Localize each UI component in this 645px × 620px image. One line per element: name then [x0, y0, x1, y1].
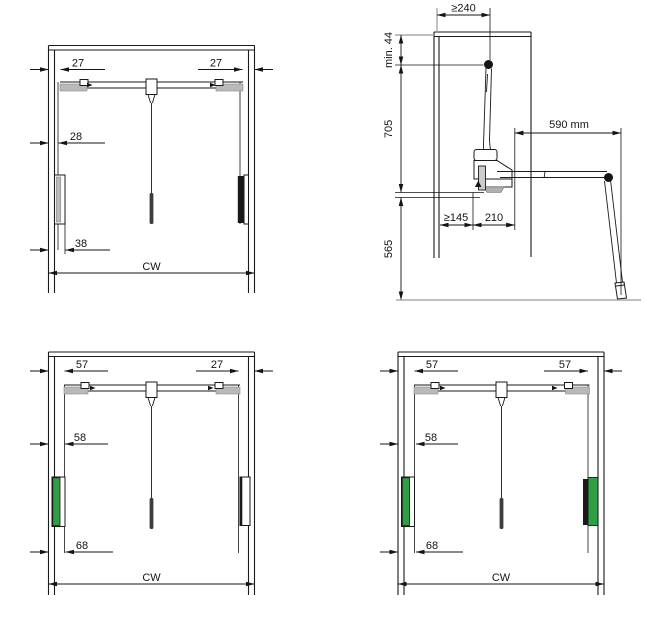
dim-label-57-left: 57	[426, 359, 438, 371]
slide-direction-arrow-left	[87, 83, 93, 87]
dim-label-27-right: 27	[210, 58, 222, 70]
dim-label-240: ≥240	[451, 3, 475, 15]
dim-label-68: 68	[426, 540, 438, 552]
dimension-145: ≥145	[440, 193, 473, 231]
dim-label-cw: CW	[142, 572, 161, 584]
lift-rail-assembly	[402, 382, 599, 553]
dimension-240: ≥240	[437, 3, 490, 61]
pull-handle	[496, 382, 507, 529]
technical-drawing-sheet: 27 27 28 38 CW	[0, 0, 645, 620]
dimension-57-left: 57	[30, 359, 108, 371]
dim-label-68: 68	[76, 540, 88, 552]
dimension-57-left: 57	[380, 359, 458, 371]
pull-handle	[146, 382, 157, 529]
dim-label-57-right: 57	[559, 359, 571, 371]
slide-direction-arrow-left	[90, 386, 96, 390]
wall-bracket-right-green	[583, 478, 598, 526]
dim-label-58: 58	[74, 432, 86, 444]
lift-rail-assembly	[55, 79, 249, 254]
dim-label-210: 210	[485, 212, 503, 224]
dimension-27-right: 27	[196, 359, 273, 371]
slide-direction-arrow-right	[552, 386, 558, 390]
front-view-lower-left: 57 27 58 68 CW	[18, 338, 308, 612]
dim-label-28: 28	[70, 131, 82, 143]
wall-bracket-left-green	[52, 477, 65, 527]
dim-label-590: 590 mm	[549, 119, 589, 131]
pivot-arm	[604, 173, 613, 182]
lift-arm-extended	[497, 172, 627, 300]
side-view: ≥240 min. 44 705 565 590 mm	[383, 0, 645, 314]
dimension-cabinet-width: CW	[49, 261, 255, 273]
cabinet-side-outline	[434, 32, 531, 258]
dimension-min44: min. 44	[383, 32, 484, 68]
dimension-58: 58	[30, 432, 108, 444]
dimension-cabinet-width: CW	[398, 572, 604, 584]
dimension-210: 210	[473, 212, 515, 225]
dim-label-145: ≥145	[444, 212, 468, 224]
dimension-58: 58	[380, 432, 458, 444]
dim-label-58: 58	[425, 432, 437, 444]
dim-label-min44: min. 44	[383, 32, 395, 68]
lift-mechanism-stored	[474, 60, 512, 193]
wall-bracket-right	[238, 175, 249, 224]
dimension-565: 565	[383, 198, 641, 301]
slide-direction-arrow-left	[440, 386, 446, 390]
dimension-38: 38	[30, 238, 110, 250]
front-view-lower-right: 57 57 58 68 CW	[368, 338, 645, 612]
lift-rail-assembly	[52, 382, 250, 553]
dimension-cabinet-width: CW	[49, 572, 255, 584]
dim-label-cw: CW	[142, 261, 161, 273]
pivot-top	[484, 60, 493, 69]
dimension-28: 28	[30, 131, 105, 143]
wall-bracket-left-green	[402, 477, 415, 527]
dimension-57-right: 57	[544, 359, 622, 371]
dimension-27-right: 27	[198, 58, 273, 70]
dim-label-57-left: 57	[76, 359, 88, 371]
dimension-27-left: 27	[30, 58, 105, 70]
slide-direction-arrow-right	[208, 386, 214, 390]
dim-label-705: 705	[383, 120, 395, 138]
wall-bracket-left	[55, 175, 66, 224]
pull-handle	[146, 79, 157, 224]
dim-label-27-left: 27	[72, 58, 84, 70]
dim-label-cw: CW	[492, 572, 511, 584]
front-view-upper: 27 27 28 38 CW	[18, 28, 298, 310]
wall-bracket-right	[240, 477, 250, 526]
dimension-68: 68	[30, 540, 113, 552]
dimension-68: 68	[380, 540, 463, 552]
dim-label-27-right: 27	[211, 359, 223, 371]
dim-label-38: 38	[75, 238, 87, 250]
dim-label-565: 565	[383, 240, 395, 258]
